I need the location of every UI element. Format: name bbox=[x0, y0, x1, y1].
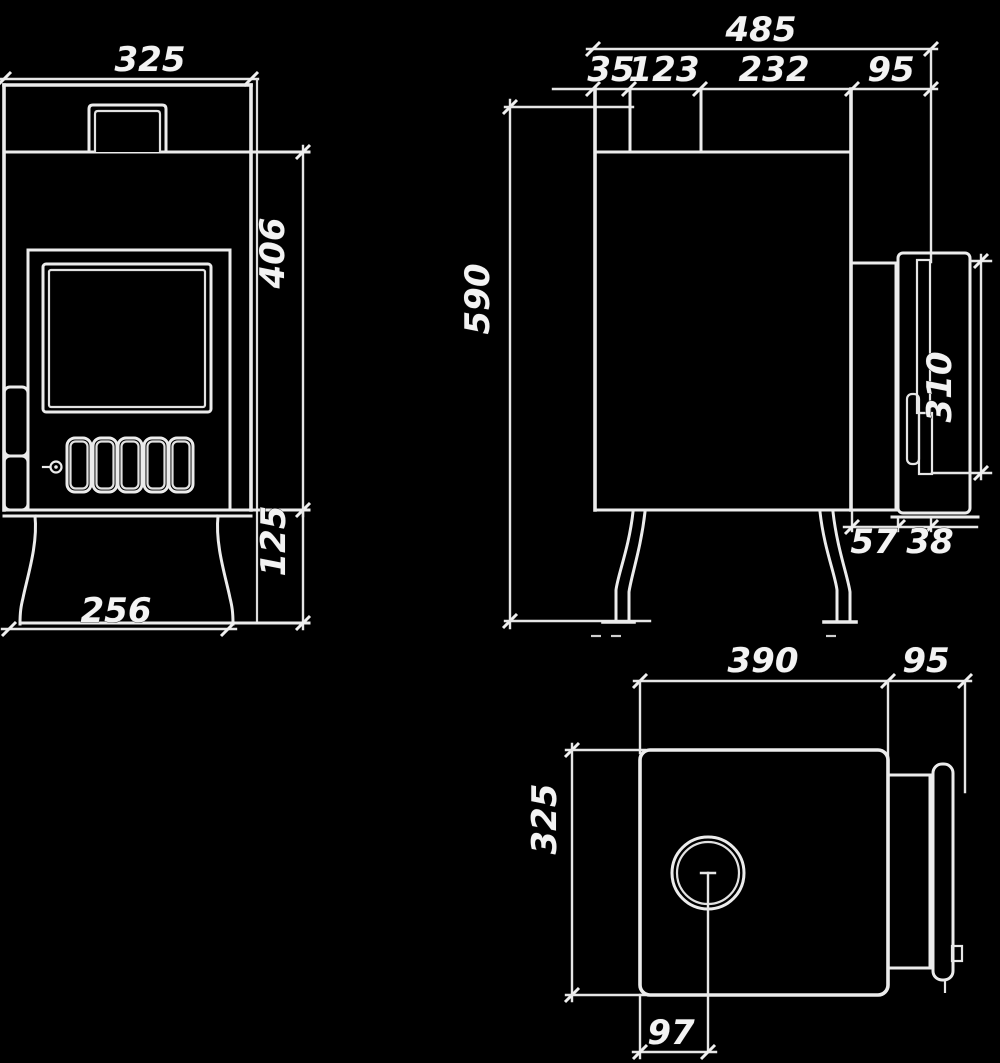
door-glass bbox=[49, 270, 205, 407]
dim-side-overall-height: 590 bbox=[458, 100, 650, 628]
air-control-knob bbox=[43, 462, 62, 473]
dim-top-width: 325 bbox=[525, 743, 645, 1002]
dim-front-base-width: 256 bbox=[2, 591, 236, 636]
top-handle-strip bbox=[933, 764, 953, 980]
dim-label-front-base-height: 125 bbox=[254, 506, 294, 577]
dim-label-top-panel-depth: 95 bbox=[902, 641, 949, 681]
dim-top-depths: 390 95 bbox=[633, 641, 972, 792]
drawing-sheet: 325 bbox=[0, 0, 1000, 1063]
dim-label-front-width: 325 bbox=[115, 40, 186, 80]
dim-label-flue-offset: 97 bbox=[647, 1013, 695, 1053]
dim-front-base-height: 125 bbox=[254, 506, 310, 630]
dim-label-top-depth: 390 bbox=[728, 641, 799, 681]
side-view: 485 35 123 232 95 590 bbox=[458, 10, 991, 636]
dim-label-seg-232: 232 bbox=[739, 50, 810, 90]
front-side-strip bbox=[4, 387, 28, 510]
dim-front-body-height: 406 bbox=[253, 145, 310, 517]
dim-label-seg-95: 95 bbox=[867, 50, 914, 90]
side-body-outline bbox=[595, 89, 898, 510]
top-door-panel bbox=[888, 764, 962, 993]
top-view: 390 95 325 bbox=[525, 641, 972, 1059]
front-vent-slots bbox=[67, 438, 193, 492]
dim-side-bottom-offsets: 57 38 bbox=[844, 512, 977, 562]
stove-technical-drawing: 325 bbox=[0, 0, 1000, 1063]
dim-side-segments: 35 123 232 95 bbox=[553, 49, 938, 262]
dim-label-handle-length: 310 bbox=[920, 352, 960, 423]
dim-label-side-depth: 485 bbox=[725, 10, 797, 50]
dim-label-front-base-width: 256 bbox=[81, 591, 152, 631]
dim-label-front-body-height: 406 bbox=[253, 218, 293, 290]
dim-label-seg-123: 123 bbox=[629, 50, 700, 90]
dim-label-57: 57 bbox=[850, 522, 898, 562]
front-flue-collar bbox=[89, 105, 166, 152]
side-legs bbox=[591, 512, 856, 636]
door-glass-frame bbox=[43, 264, 211, 412]
dim-front-overall-width: 325 bbox=[0, 40, 258, 86]
dim-label-top-width: 325 bbox=[525, 784, 565, 855]
dim-label-38: 38 bbox=[906, 522, 953, 562]
front-view: 325 bbox=[0, 40, 310, 636]
dim-top-flue-offset: 97 bbox=[633, 995, 716, 1059]
dim-label-side-height: 590 bbox=[458, 264, 498, 335]
